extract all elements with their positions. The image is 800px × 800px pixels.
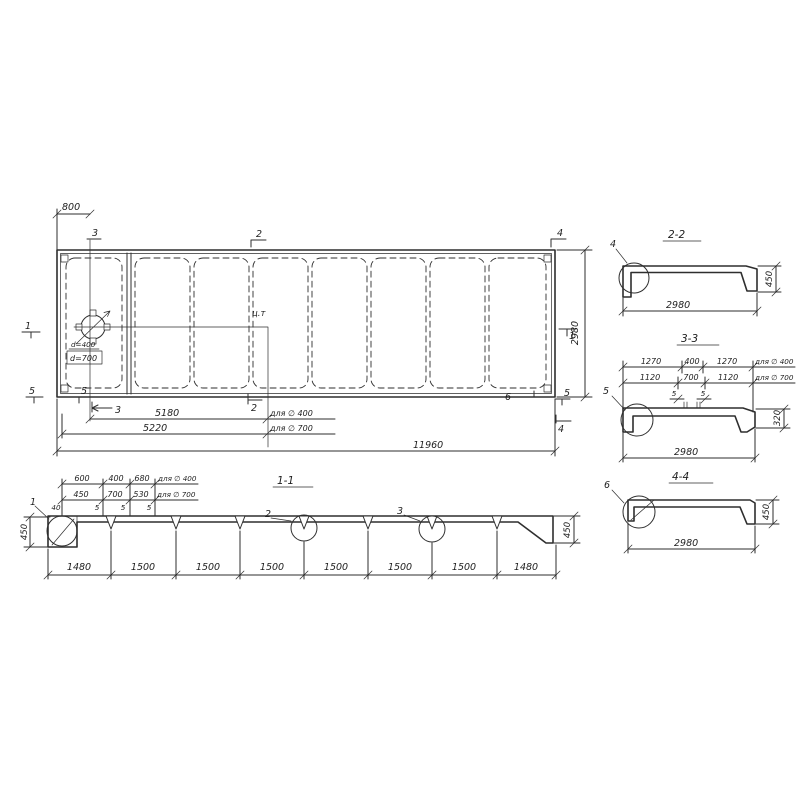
dim-400: 400 — [108, 474, 123, 483]
dim-1270-right: 1270 — [717, 357, 737, 366]
dim-1500-2: 1500 — [196, 562, 220, 573]
hole-d400-label: d=400 — [71, 340, 96, 349]
gap-5-left: 5 — [672, 389, 677, 398]
section-2-2: 2-2 4 2980 450 — [610, 229, 781, 316]
section-mark-2-bottom-label: 2 — [251, 403, 257, 414]
note-d700: для ∅ 700 — [754, 373, 794, 382]
dim-450-right: 450 — [563, 522, 573, 538]
dim-5b: 5 — [121, 503, 126, 512]
dim-2980-label: 2980 — [666, 300, 690, 311]
panel-opening — [371, 258, 426, 388]
dim-400: 400 — [684, 357, 699, 366]
dim-1270-left: 1270 — [641, 357, 661, 366]
slab-inner-outline — [61, 254, 552, 394]
note-d400: для ∅ 400 — [754, 357, 794, 366]
panel-opening — [430, 258, 485, 388]
dimension-ticks — [53, 210, 589, 455]
detail-circle-1 — [47, 516, 77, 546]
note-d700: для ∅ 700 — [156, 490, 196, 499]
gap-5-right: 5 — [701, 389, 706, 398]
section-mark-4-br-label: 4 — [558, 424, 564, 435]
dim-5180-label: 5180 — [155, 408, 179, 419]
section-mark-5-left-label: 5 — [29, 386, 35, 397]
drawing-canvas: 800 3 2 4 ц.т d=400 d=700 2980 1 1 5 5 3… — [0, 0, 800, 800]
section-mark-4-label: 4 — [557, 228, 563, 239]
panel-openings — [66, 258, 546, 388]
section-mark-1-left-label: 1 — [25, 321, 31, 332]
panel-opening — [253, 258, 308, 388]
dim-1500-3: 1500 — [260, 562, 284, 573]
panel-opening — [66, 258, 122, 388]
detail-1-label: 1 — [30, 497, 36, 508]
section-3-3: 3-3 5 1270 400 1270 для ∅ 400 1120 700 1… — [603, 333, 795, 462]
panel-opening — [194, 258, 249, 388]
note-d400-label: для ∅ 400 — [269, 409, 313, 418]
section-mark-5-br-label: 5 — [564, 388, 570, 399]
note-d400: для ∅ 400 — [157, 474, 197, 483]
dimension-lines — [57, 209, 592, 456]
panel-opening — [489, 258, 546, 388]
dim-1120-right: 1120 — [718, 373, 738, 382]
section-3-3-title: 3-3 — [681, 333, 698, 345]
detail-3-label: 3 — [397, 506, 403, 517]
hole-d700-label: d=700 — [70, 354, 97, 363]
section-mark-2-label: 2 — [256, 229, 262, 240]
section-mark-1-right-label: 1 — [569, 331, 575, 342]
dim-1480-left: 1480 — [67, 562, 91, 573]
dim-5220-label: 5220 — [143, 423, 167, 434]
center-of-gravity-label: ц.т — [252, 309, 266, 319]
dim-2980-label: 2980 — [674, 447, 698, 458]
dim-5c: 5 — [147, 503, 152, 512]
section-1-1: 1-1 1 2 3 600 400 680 для ∅ 400 450 700 … — [20, 474, 580, 579]
section-2-2-profile — [623, 266, 757, 297]
slab-outline — [57, 250, 555, 397]
dim-2980-label: 2980 — [674, 538, 698, 549]
dim-450-left: 450 — [20, 524, 30, 540]
hole-edge-ticks — [684, 402, 700, 408]
dimension-lines — [628, 500, 779, 553]
dim-700: 700 — [107, 490, 122, 499]
leader-and-underline — [612, 345, 719, 410]
detail-5-label: 5 — [603, 386, 609, 397]
drawing-sheet: 800 3 2 4 ц.т d=400 d=700 2980 1 1 5 5 3… — [0, 0, 800, 800]
section-mark-6-label: 6 — [505, 392, 511, 403]
detail-4-label: 4 — [610, 239, 616, 250]
section-mark-3-bottom-label: 3 — [115, 405, 121, 416]
dim-1500-6: 1500 — [452, 562, 476, 573]
dim-1120-left: 1120 — [640, 373, 660, 382]
dim-5a: 5 — [95, 503, 100, 512]
dim-1500-5: 1500 — [388, 562, 412, 573]
dim-40: 40 — [51, 503, 61, 512]
dim-450-label: 450 — [762, 504, 772, 520]
section-1-1-title: 1-1 — [277, 475, 294, 487]
section-marks — [22, 239, 576, 423]
dim-450-label: 450 — [765, 271, 775, 287]
dim-1500-1: 1500 — [131, 562, 155, 573]
dim-1480-right: 1480 — [514, 562, 538, 573]
dim-700: 700 — [683, 373, 698, 382]
detail-2-label: 2 — [265, 509, 271, 520]
dim-450: 450 — [73, 490, 88, 499]
dim-11960-label: 11960 — [413, 440, 443, 451]
section-2-2-title: 2-2 — [668, 229, 685, 241]
section-3-3-profile — [623, 408, 755, 432]
leader-and-underline — [616, 241, 701, 263]
section-4-4-title: 4-4 — [672, 471, 689, 483]
detail-6-label: 6 — [604, 480, 610, 491]
dim-800-label: 800 — [62, 202, 80, 213]
dim-530: 530 — [133, 490, 148, 499]
dim-320-label: 320 — [773, 410, 783, 426]
section-4-4: 4-4 6 2980 450 — [604, 471, 779, 553]
dim-600: 600 — [74, 474, 89, 483]
section-mark-5-bottom-label: 5 — [81, 386, 87, 397]
panel-opening — [312, 258, 367, 388]
note-d700-label: для ∅ 700 — [269, 424, 313, 433]
rib-divider — [127, 253, 131, 394]
dimension-ticks — [619, 262, 780, 315]
panel-opening — [135, 258, 190, 388]
dim-680: 680 — [134, 474, 149, 483]
plan-view: 800 3 2 4 ц.т d=400 d=700 2980 1 1 5 5 3… — [22, 202, 592, 456]
dim-1500-4: 1500 — [324, 562, 348, 573]
corner-notches — [61, 255, 551, 392]
section-4-4-profile — [628, 500, 755, 524]
section-mark-3-label: 3 — [92, 228, 98, 239]
